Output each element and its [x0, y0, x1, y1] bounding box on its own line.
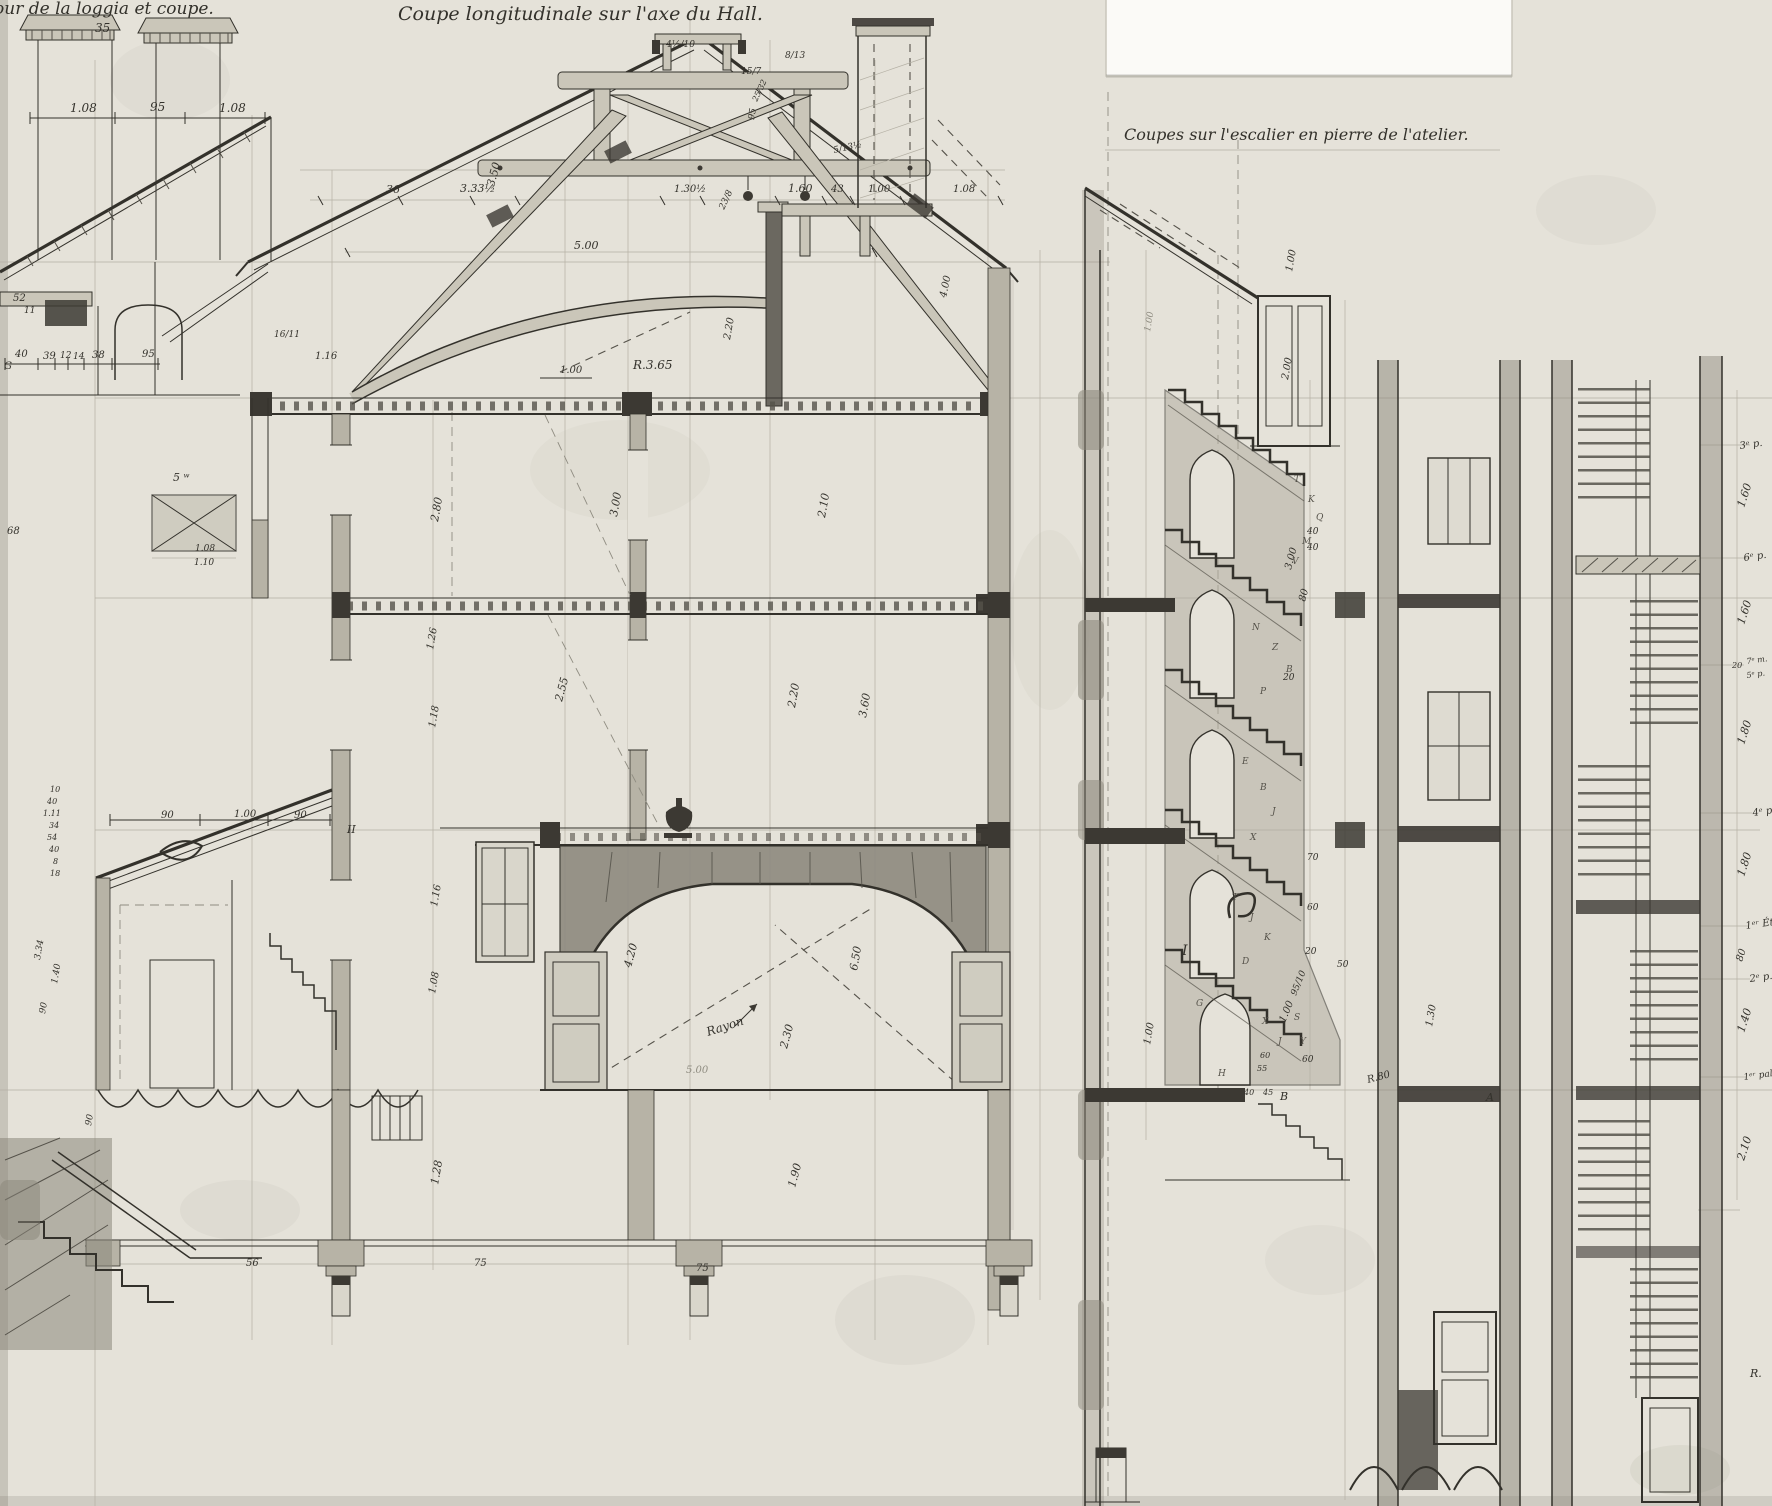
dimension-label: 90: [294, 810, 307, 821]
dimension-label: 20: [1304, 947, 1317, 957]
stone-letter: K: [1263, 933, 1272, 943]
dimension-label: 1.00: [868, 184, 891, 195]
dimension-label: A: [1485, 1091, 1494, 1104]
stone-letter: E: [1241, 757, 1249, 767]
scanned-drawing-sheet: Tour de la loggia et coupe. Coupe longit…: [0, 0, 1772, 1506]
dimension-label: 5.00: [574, 239, 599, 252]
dimension-label: 95: [150, 100, 165, 114]
dimension-label: 50: [1337, 960, 1349, 970]
dimension-label: 60: [1260, 1051, 1270, 1060]
stone-letter: S: [1294, 1013, 1300, 1023]
dimension-label: G: [4, 361, 12, 372]
floor-slab: [1085, 1088, 1245, 1102]
stone-letter: Z: [1271, 643, 1279, 653]
dimension-label: 90: [161, 810, 174, 821]
stone-letter: D: [1241, 957, 1249, 967]
roof-plan-detail: [152, 495, 236, 558]
pasted-label-patch: [1106, 0, 1512, 78]
stone-letter: N: [1251, 623, 1261, 633]
stone-letter: X: [1249, 833, 1257, 843]
dimension-label: 1.08: [70, 101, 97, 115]
window: [1428, 458, 1490, 544]
dimension-label: 1.00: [234, 809, 257, 820]
architectural-section-drawing: Tour de la loggia et coupe. Coupe longit…: [0, 0, 1772, 1506]
chimney-cap-right: [138, 18, 238, 33]
center-post: [766, 210, 782, 406]
dimension-label: R.3.65: [632, 358, 673, 372]
dimension-label: 40: [1243, 1088, 1254, 1097]
stone-letter: G: [1196, 999, 1203, 1009]
dimension-label: I: [1181, 943, 1188, 959]
lower-chord: [478, 160, 930, 176]
dimension-label: 16/11: [274, 330, 300, 340]
dimension-label: 55: [1257, 1064, 1267, 1073]
dimension-label: 39: [43, 351, 56, 362]
dimension-label: 1.08: [195, 544, 215, 554]
dimension-label: 15/7: [741, 67, 761, 77]
dimension-label: 90: [38, 1001, 50, 1014]
stone-letter: B: [1285, 665, 1293, 675]
stone-letter: B: [1259, 783, 1267, 793]
dimension-label: 95: [747, 107, 759, 120]
dimension-label: 1.08: [953, 184, 975, 195]
dimension-label: 34: [49, 821, 59, 830]
dimension-label: 4½/10: [665, 39, 695, 50]
dimension-label: 52: [13, 293, 26, 304]
dimension-label: 90: [84, 1113, 96, 1126]
stone-letter: X: [1261, 1017, 1269, 1027]
dimension-label: II: [346, 823, 356, 836]
dimension-label: 60: [1302, 1055, 1314, 1065]
dimension-label: 1.10: [194, 558, 214, 568]
landing-slab: [1085, 828, 1185, 844]
dimension-label: 60: [1307, 903, 1319, 913]
dimension-label: 54: [47, 833, 57, 842]
dimension-label: 1.00: [560, 365, 583, 376]
dimension-label: 5 ʷ: [173, 471, 189, 484]
dimension-label: 18: [50, 869, 60, 878]
stone-letter: H: [1217, 1069, 1226, 1079]
dimension-label: 95: [142, 349, 155, 360]
dimension-label: 5.00: [686, 1065, 709, 1076]
title-stair-section: Coupes sur l'escalier en pierre de l'ate…: [1124, 125, 1469, 144]
title-loggia: Tour de la loggia et coupe.: [0, 0, 214, 19]
glazed-cabinet: [476, 842, 534, 962]
dimension-label: 75: [696, 1263, 709, 1274]
dimension-label: 10: [50, 785, 60, 794]
dimension-label: R.: [1749, 1367, 1762, 1380]
stone-letter: M: [1301, 537, 1312, 547]
dimension-label: 75: [474, 1258, 487, 1269]
stone-letter: T: [1232, 893, 1239, 903]
pendant-finial: [743, 191, 753, 201]
dimension-label: 56: [246, 1258, 259, 1269]
dimension-label: 11: [24, 306, 35, 316]
landing-slab: [1085, 598, 1175, 612]
dimension-label: 35: [95, 21, 110, 35]
landing-slab: [1576, 556, 1700, 574]
dimension-label: B: [1279, 1090, 1288, 1103]
stone-letter: Y: [1300, 1037, 1307, 1047]
stone-letter: Q: [1316, 513, 1324, 523]
stone-letter: K: [1307, 495, 1316, 505]
dimension-label: 38: [92, 350, 105, 361]
dimension-label: 1.11: [43, 809, 61, 818]
dimension-label: 40: [48, 845, 59, 854]
dimension-label: 8/13: [785, 51, 805, 61]
stone-letter: P: [1259, 687, 1267, 697]
dimension-label: 12: [60, 351, 72, 361]
stone-letter: T: [1294, 475, 1301, 485]
dimension-label: 20: [1731, 661, 1742, 670]
dimension-label: 1.16: [315, 351, 338, 362]
dimension-label: 1.60: [788, 182, 813, 195]
dimension-label: 1.30½: [674, 184, 706, 195]
dimension-label: 36: [386, 183, 400, 196]
dimension-label: 1.08: [219, 101, 246, 115]
dimension-label: 40: [14, 349, 28, 360]
collar-beam: [558, 72, 848, 89]
dimension-label: 45: [1262, 1088, 1273, 1097]
dimension-label: 40: [1306, 527, 1319, 537]
dimension-label: 14: [73, 352, 85, 362]
dimension-label: 40: [46, 797, 57, 806]
dimension-label: 68: [7, 526, 20, 537]
title-main-section: Coupe longitudinale sur l'axe du Hall.: [398, 3, 763, 25]
dimension-label: 8: [53, 857, 58, 866]
dimension-label: 43: [830, 184, 844, 195]
dimension-label: 70: [1307, 853, 1319, 863]
